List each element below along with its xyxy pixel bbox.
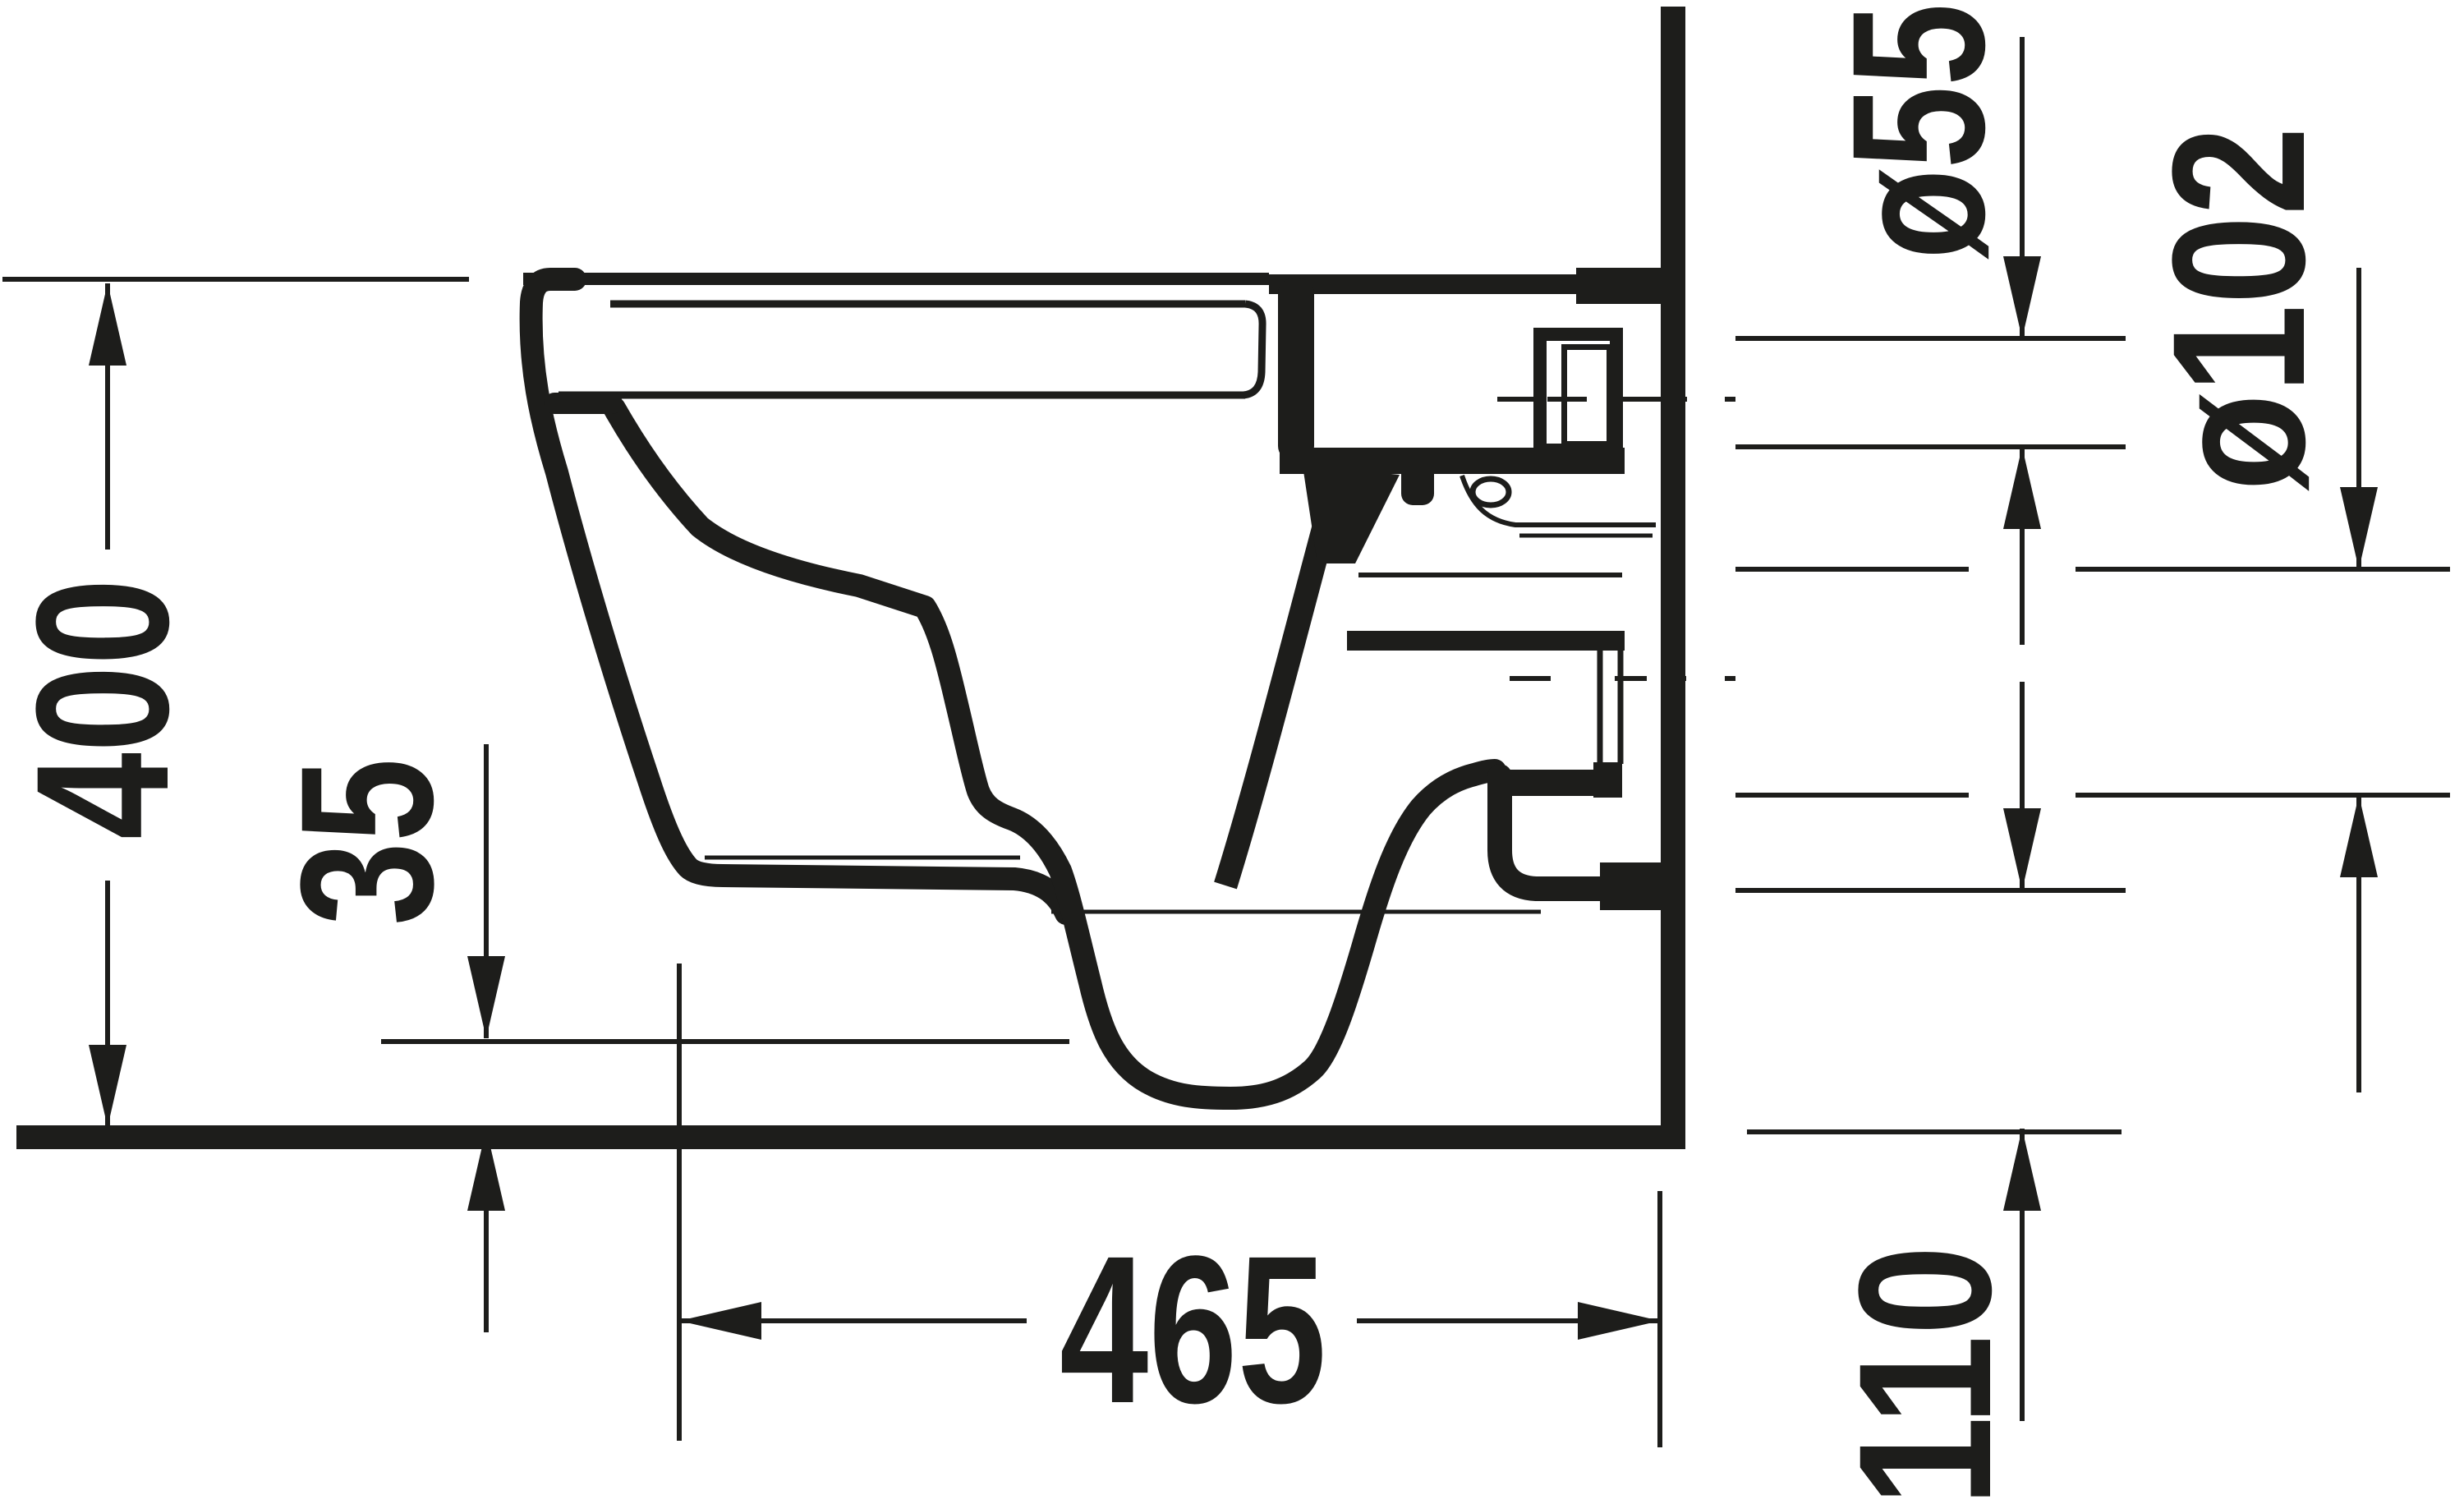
svg-text:465: 465 xyxy=(1060,1212,1326,1447)
svg-text:ø55: ø55 xyxy=(1813,3,2024,260)
svg-text:400: 400 xyxy=(0,578,208,839)
svg-text:ø102: ø102 xyxy=(2133,126,2344,491)
svg-text:110: 110 xyxy=(1819,1245,2030,1504)
svg-text:35: 35 xyxy=(261,758,472,926)
